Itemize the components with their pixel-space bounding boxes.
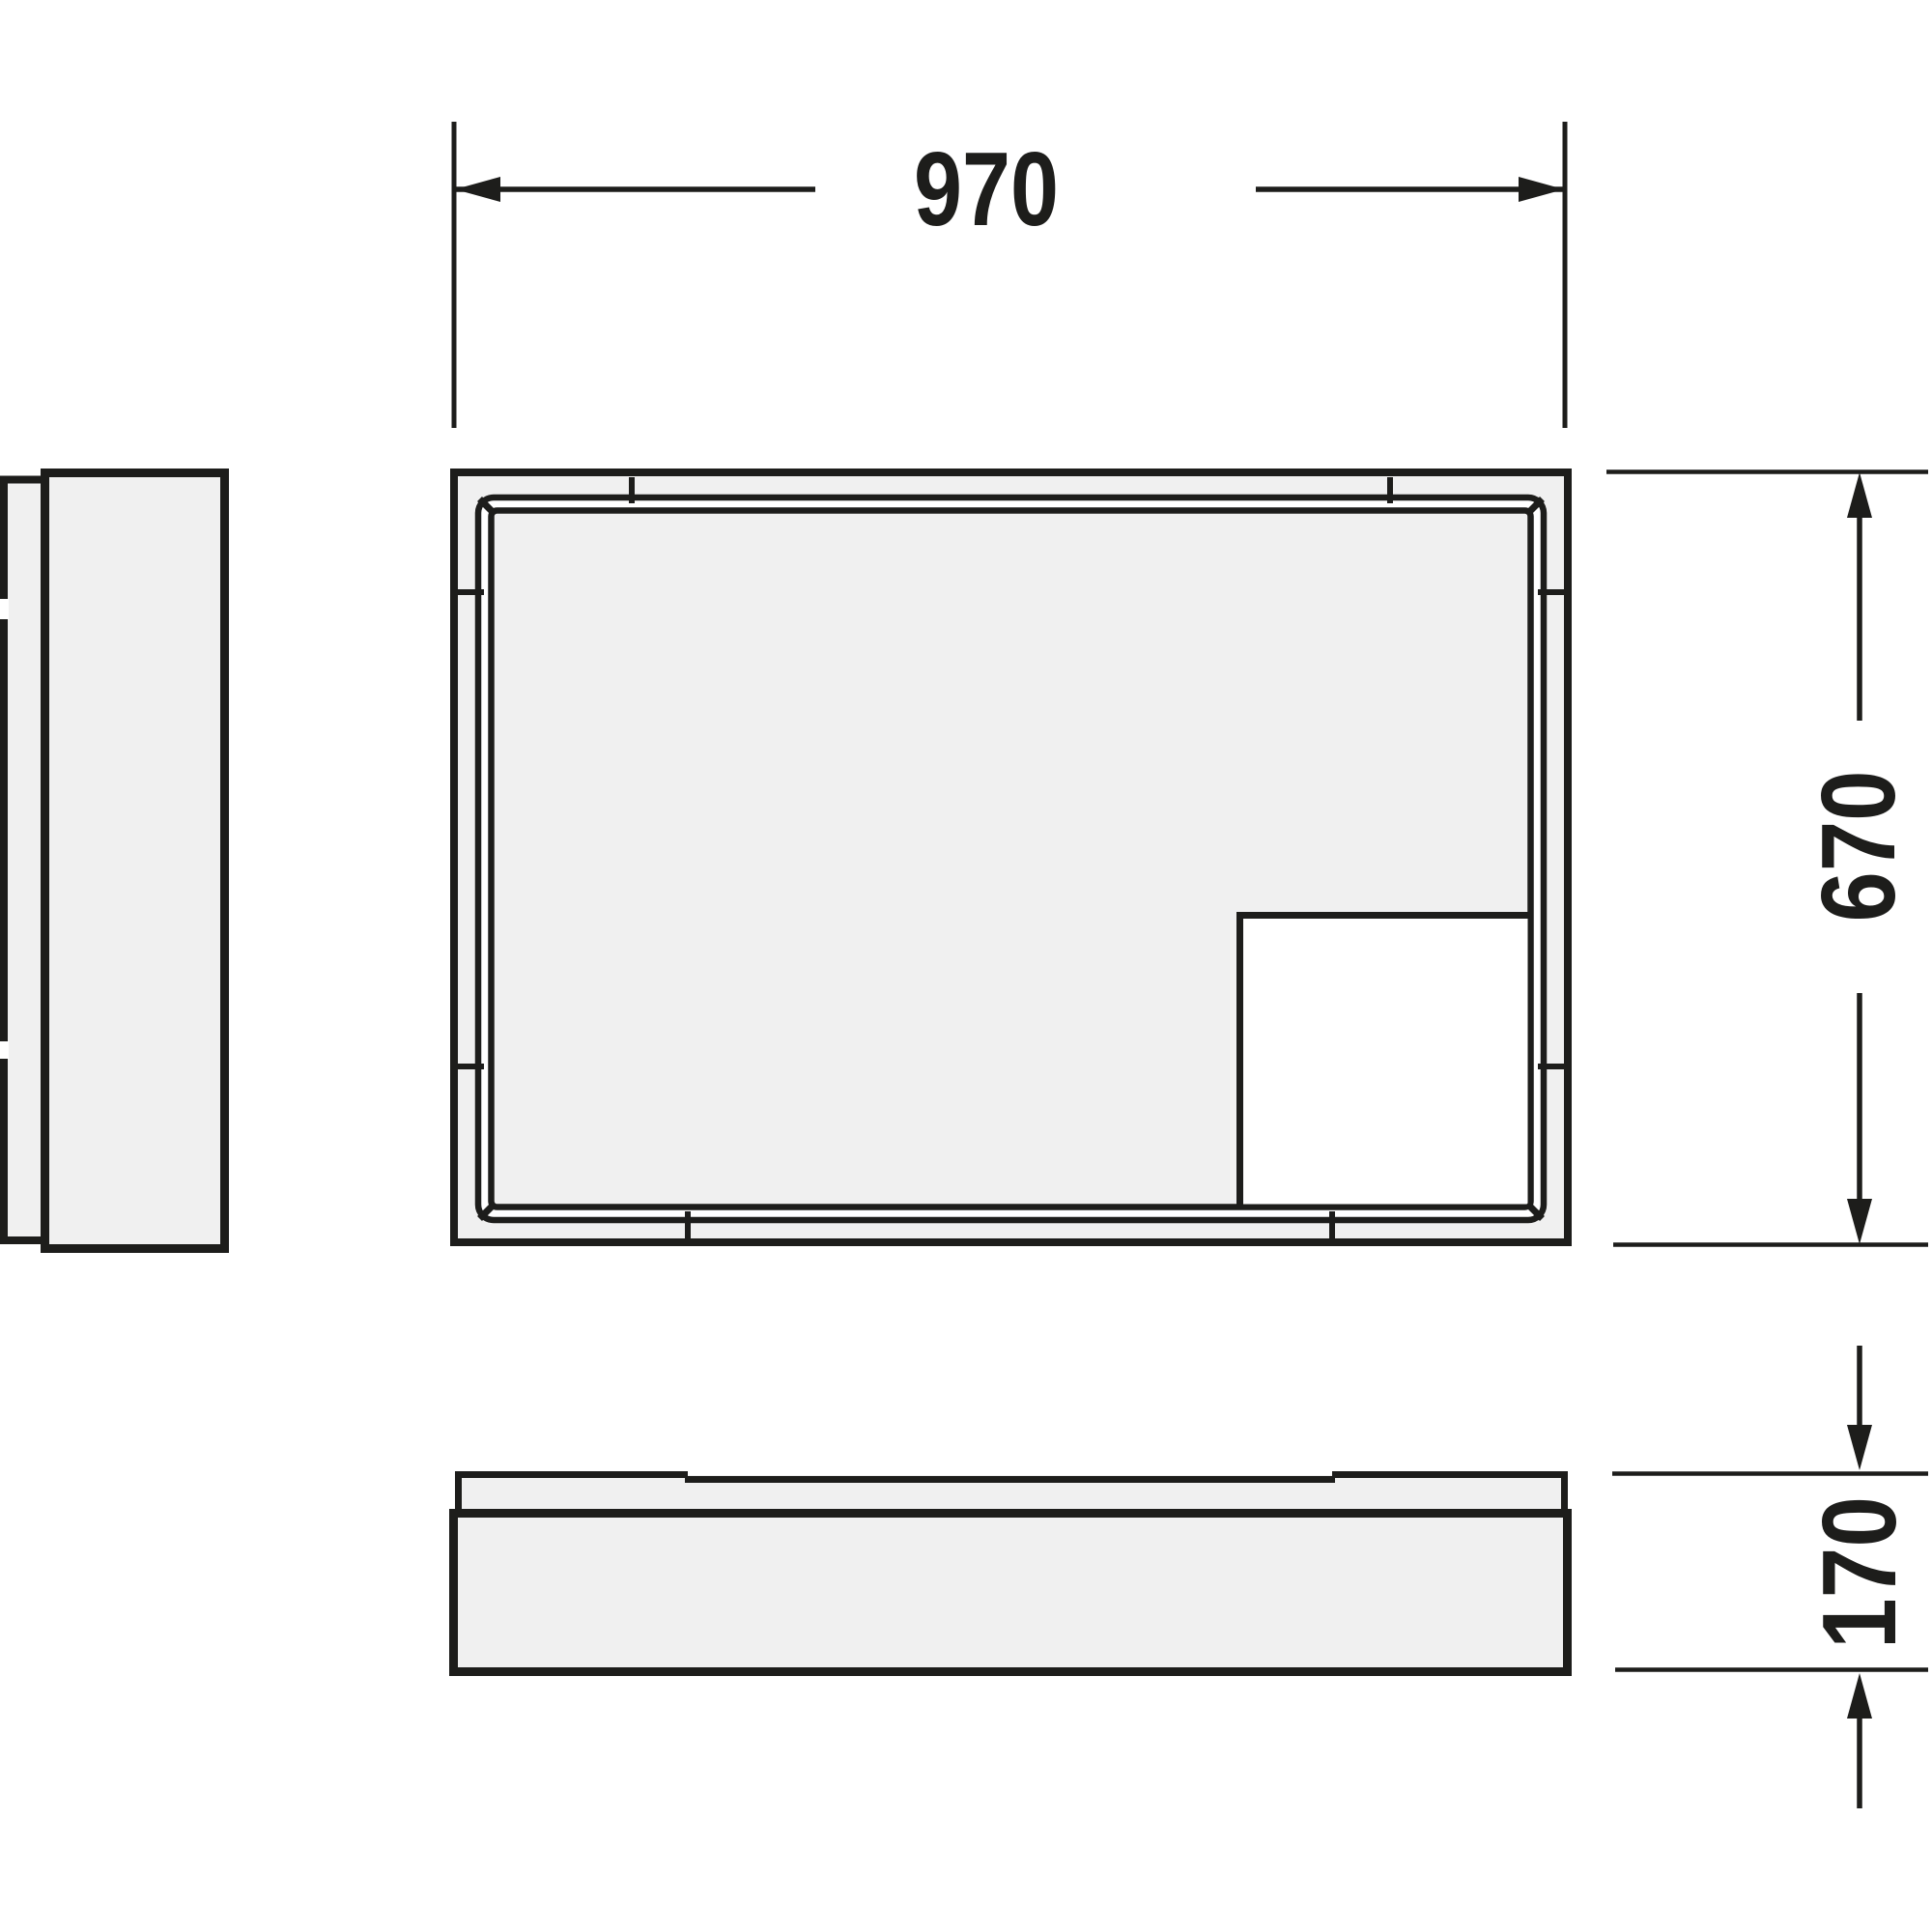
svg-text:170: 170	[1801, 1496, 1918, 1649]
svg-text:670: 670	[1800, 771, 1918, 923]
svg-text:970: 970	[914, 130, 1059, 248]
